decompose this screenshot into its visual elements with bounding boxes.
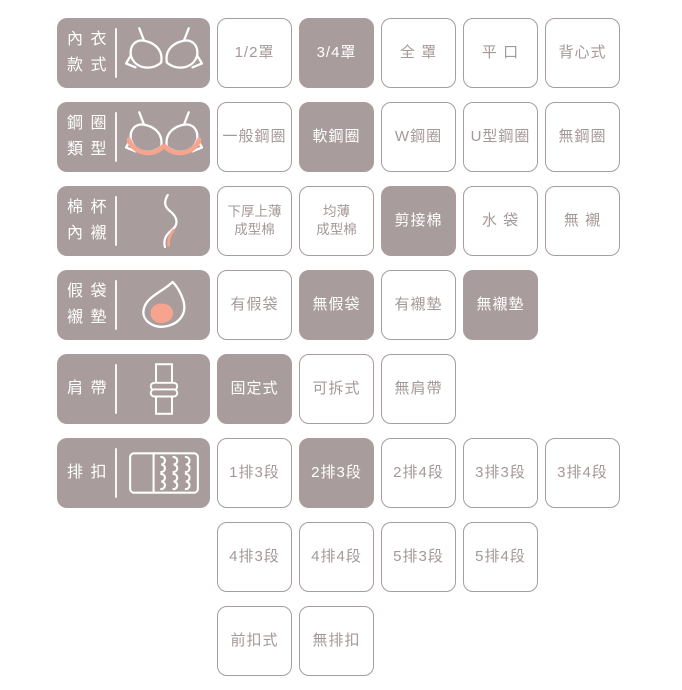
option-button[interactable]: 1/2罩 xyxy=(217,18,292,88)
label-divider xyxy=(115,448,117,498)
option-button[interactable]: 有襯墊 xyxy=(381,270,456,340)
option-button[interactable]: 4排4段 xyxy=(299,522,374,592)
option-button[interactable]: 5排4段 xyxy=(463,522,538,592)
option-button[interactable]: 可拆式 xyxy=(299,354,374,424)
label-line-1: 假 袋 xyxy=(67,283,108,300)
option-label: 3排4段 xyxy=(557,463,608,483)
option-button[interactable]: 下厚上薄成型棉 xyxy=(217,186,292,256)
option-button[interactable]: W鋼圈 xyxy=(381,102,456,172)
option-label: 均薄 xyxy=(323,203,350,221)
option-label: 1排3段 xyxy=(229,463,280,483)
spec-row-bra-style: 內 衣 款 式 1/2罩 3/4罩 全 罩 平 口 背心式 xyxy=(57,18,627,88)
option-label: 5排3段 xyxy=(393,547,444,567)
shoulder-strap-icon xyxy=(123,362,205,416)
spec-table: 內 衣 款 式 1/2罩 3/4罩 全 罩 平 口 背心式 鋼 圈 類 型 xyxy=(57,18,627,690)
label-line-2: 內 襯 xyxy=(67,225,108,242)
option-button[interactable]: 3排4段 xyxy=(545,438,620,508)
category-label-cup-lining: 棉 杯 內 襯 xyxy=(57,186,210,256)
label-divider xyxy=(115,364,117,414)
option-label: 有假袋 xyxy=(230,295,278,315)
option-label: 2排3段 xyxy=(311,463,362,483)
option-button[interactable]: 全 罩 xyxy=(381,18,456,88)
underwire-icon xyxy=(123,111,205,163)
category-label-text: 棉 杯 內 襯 xyxy=(67,195,109,248)
option-label-line2: 成型棉 xyxy=(234,221,275,239)
option-button[interactable]: 剪接棉 xyxy=(381,186,456,256)
option-button[interactable]: 無肩帶 xyxy=(381,354,456,424)
option-button[interactable]: 2排4段 xyxy=(381,438,456,508)
hook-closure-icon xyxy=(123,452,205,494)
spec-row-hook-closure-3: 前扣式 無排扣 xyxy=(217,606,627,676)
category-label-text: 鋼 圈 類 型 xyxy=(67,111,109,164)
spec-row-hook-closure-2: 4排3段 4排4段 5排3段 5排4段 xyxy=(217,522,627,592)
option-button[interactable]: 軟鋼圈 xyxy=(299,102,374,172)
option-label: 一般鋼圈 xyxy=(222,127,286,147)
option-label-line2: 成型棉 xyxy=(316,221,357,239)
option-label: 無假袋 xyxy=(312,295,360,315)
spec-row-underwire-type: 鋼 圈 類 型 一般鋼圈 軟鋼圈 W鋼圈 U型鋼圈 無鋼圈 xyxy=(57,102,627,172)
option-label: 固定式 xyxy=(230,379,278,399)
option-label: 2排4段 xyxy=(393,463,444,483)
option-label: U型鋼圈 xyxy=(471,127,531,147)
option-label: 全 罩 xyxy=(400,43,437,63)
label-divider xyxy=(115,112,117,162)
category-label-hook-closure: 排 扣 xyxy=(57,438,210,508)
option-label: 3排3段 xyxy=(475,463,526,483)
label-line-2: 類 型 xyxy=(67,141,108,158)
option-label: 背心式 xyxy=(558,43,606,63)
option-button[interactable]: 平 口 xyxy=(463,18,538,88)
spec-row-padding: 假 袋 襯 墊 有假袋 無假袋 有襯墊 無襯墊 xyxy=(57,270,627,340)
option-button[interactable]: 4排3段 xyxy=(217,522,292,592)
option-button[interactable]: 3/4罩 xyxy=(299,18,374,88)
option-button[interactable]: 3排3段 xyxy=(463,438,538,508)
category-label-padding: 假 袋 襯 墊 xyxy=(57,270,210,340)
option-button[interactable]: U型鋼圈 xyxy=(463,102,538,172)
option-button[interactable]: 2排3段 xyxy=(299,438,374,508)
option-button[interactable]: 固定式 xyxy=(217,354,292,424)
label-line-1: 排 扣 xyxy=(67,464,108,481)
option-button[interactable]: 有假袋 xyxy=(217,270,292,340)
option-label: 無肩帶 xyxy=(394,379,442,399)
category-label-shoulder-strap: 肩 帶 xyxy=(57,354,210,424)
category-label-bra-style: 內 衣 款 式 xyxy=(57,18,210,88)
option-label: 4排3段 xyxy=(229,547,280,567)
option-label: 前扣式 xyxy=(230,631,278,651)
label-line-1: 棉 杯 xyxy=(67,199,108,216)
option-label: 有襯墊 xyxy=(394,295,442,315)
option-label: 4排4段 xyxy=(311,547,362,567)
option-label: 無排扣 xyxy=(312,631,360,651)
option-button[interactable]: 一般鋼圈 xyxy=(217,102,292,172)
pad-icon xyxy=(123,280,205,330)
label-line-2: 襯 墊 xyxy=(67,309,108,326)
option-button[interactable]: 無排扣 xyxy=(299,606,374,676)
label-line-2: 款 式 xyxy=(67,57,108,74)
option-label: W鋼圈 xyxy=(395,127,442,147)
option-button[interactable]: 背心式 xyxy=(545,18,620,88)
option-label: 無鋼圈 xyxy=(558,127,606,147)
option-label: 1/2罩 xyxy=(235,43,275,63)
label-divider xyxy=(115,196,117,246)
option-label: 下厚上薄 xyxy=(228,203,282,221)
spec-row-shoulder-strap: 肩 帶 固定式 可拆式 無肩帶 xyxy=(57,354,627,424)
bra-icon xyxy=(123,27,205,79)
option-button[interactable]: 前扣式 xyxy=(217,606,292,676)
option-button[interactable]: 無襯墊 xyxy=(463,270,538,340)
option-button[interactable]: 無 襯 xyxy=(545,186,620,256)
cup-lining-icon xyxy=(123,194,205,248)
option-button[interactable]: 水 袋 xyxy=(463,186,538,256)
spec-row-cup-lining: 棉 杯 內 襯 下厚上薄成型棉 均薄成型棉 剪接棉 水 袋 無 襯 xyxy=(57,186,627,256)
option-button[interactable]: 1排3段 xyxy=(217,438,292,508)
spec-row-hook-closure: 排 扣 1排3段 2排3段 2排4段 3排3段 3排4段 xyxy=(57,438,627,508)
option-button[interactable]: 無假袋 xyxy=(299,270,374,340)
option-label: 剪接棉 xyxy=(394,211,442,231)
option-button[interactable]: 無鋼圈 xyxy=(545,102,620,172)
option-label: 平 口 xyxy=(482,43,519,63)
category-label-text: 假 袋 襯 墊 xyxy=(67,279,109,332)
label-divider xyxy=(115,28,117,78)
category-label-text: 排 扣 xyxy=(67,460,109,486)
label-line-1: 鋼 圈 xyxy=(67,115,108,132)
category-label-text: 肩 帶 xyxy=(67,376,109,402)
label-divider xyxy=(115,280,117,330)
category-label-underwire-type: 鋼 圈 類 型 xyxy=(57,102,210,172)
option-label: 無襯墊 xyxy=(476,295,524,315)
category-label-text: 內 衣 款 式 xyxy=(67,27,109,80)
option-button[interactable]: 均薄成型棉 xyxy=(299,186,374,256)
option-label: 可拆式 xyxy=(312,379,360,399)
label-line-1: 內 衣 xyxy=(67,31,108,48)
option-label: 5排4段 xyxy=(475,547,526,567)
option-label: 軟鋼圈 xyxy=(312,127,360,147)
label-line-1: 肩 帶 xyxy=(67,380,108,397)
option-label: 3/4罩 xyxy=(317,43,357,63)
option-button[interactable]: 5排3段 xyxy=(381,522,456,592)
option-label: 無 襯 xyxy=(564,211,601,231)
option-label: 水 袋 xyxy=(482,211,519,231)
